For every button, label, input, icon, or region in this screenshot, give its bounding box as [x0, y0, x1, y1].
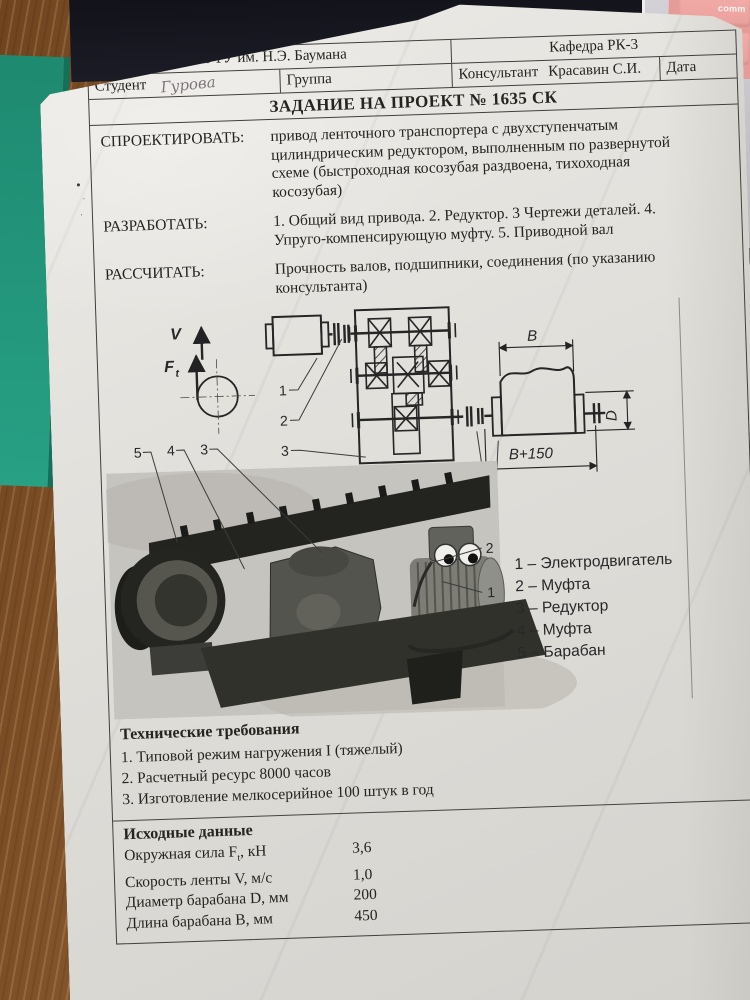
section-develop: РАЗРАБОТАТЬ: 1. Общий вид привода. 2. Ре… — [103, 198, 738, 256]
velocity-force-symbols — [178, 326, 256, 435]
student-name-handwritten: Гурова — [159, 72, 216, 96]
key-label: comm — [718, 3, 746, 14]
scheme-callout-2: 2 — [280, 412, 289, 428]
photo-callout-1: 1 — [487, 584, 496, 600]
section-design: СПРОЕКТИРОВАТЬ: привод ленточного трансп… — [100, 113, 736, 208]
dimension-b — [499, 339, 574, 376]
group-label: Группа — [286, 71, 332, 89]
force-label-sub: t — [175, 368, 179, 380]
legend-item-5: 5 – Барабан — [517, 642, 606, 662]
value-force: 3,6 — [352, 838, 372, 865]
paper-sheet: МГТУ им. Н.Э. Баумана Кафедра РК-3 Студе… — [37, 0, 750, 1000]
figure-legend: 1 – Электродвигатель 2 – Муфта 3 – Редук… — [514, 551, 675, 662]
assignment-sections: СПРОЕКТИРОВАТЬ: привод ленточного трансп… — [90, 105, 744, 304]
legend-item-4: 4 – Муфта — [516, 620, 592, 639]
ink-marks — [77, 183, 80, 186]
param-force: Окружная сила F — [124, 844, 238, 865]
legend-item-1: 1 – Электродвигатель — [514, 551, 672, 573]
section-design-label: СПРОЕКТИРОВАТЬ: — [100, 128, 272, 208]
legend-item-2: 2 – Муфта — [515, 576, 591, 595]
consultant-label: Консультант — [458, 64, 538, 84]
value-diameter: 200 — [353, 885, 377, 906]
section-calculate-label: РАССЧИТАТЬ: — [105, 261, 276, 304]
param-force-tail: , кН — [240, 843, 267, 861]
department-name: Кафедра РК-3 — [549, 37, 639, 57]
date-label: Дата — [666, 59, 696, 77]
motor-symbol — [265, 315, 333, 355]
date-cell: Дата — [660, 55, 737, 81]
photo-callout-3: 3 — [200, 441, 209, 457]
section-develop-label: РАЗРАБОТАТЬ: — [103, 213, 274, 256]
section-calculate-text: Прочность валов, подшипники, соединения … — [275, 248, 680, 298]
conveyor-photo — [100, 437, 578, 722]
force-label: F — [164, 358, 176, 376]
intermediate-gears — [366, 356, 451, 407]
input-coupling-symbol — [334, 322, 356, 345]
photo-callout-2: 2 — [485, 540, 494, 556]
figure-drawing: V F t B D B+150 1 2 3 5 4 — [100, 294, 729, 722]
scheme-callout-3: 3 — [281, 443, 290, 459]
scheme-callout-1: 1 — [279, 382, 288, 398]
initial-data: Исходные данные Окружная сила Ft, кН 3,6… — [113, 800, 750, 944]
dim-b150-label: B+150 — [509, 445, 554, 463]
section-calculate: РАССЧИТАТЬ: Прочность валов, подшипники,… — [105, 246, 740, 304]
consultant-name: Красавин С.И. — [548, 61, 641, 81]
value-speed: 1,0 — [353, 865, 373, 886]
value-length: 450 — [354, 905, 378, 926]
dim-d-label: D — [603, 410, 620, 422]
section-design-text: привод ленточного транспортера с двухсту… — [270, 115, 676, 202]
form-frame: МГТУ им. Н.Э. Баумана Кафедра РК-3 Студе… — [87, 30, 750, 945]
section-develop-text: 1. Общий вид привода. 2. Редуктор. 3 Чер… — [273, 200, 678, 250]
legend-item-3: 3 – Редуктор — [516, 597, 609, 617]
photo-of-desk: comm МГТУ им. Н.Э. Баумана Кафедра РК-3 — [0, 0, 750, 1000]
figure-right-border — [679, 298, 692, 699]
velocity-label: V — [170, 325, 183, 343]
output-coupling-symbol — [467, 406, 493, 427]
drum-drawing — [491, 366, 606, 436]
photo-callout-5: 5 — [134, 445, 143, 461]
dim-b-label: B — [527, 328, 538, 345]
photo-callout-4: 4 — [167, 442, 176, 458]
